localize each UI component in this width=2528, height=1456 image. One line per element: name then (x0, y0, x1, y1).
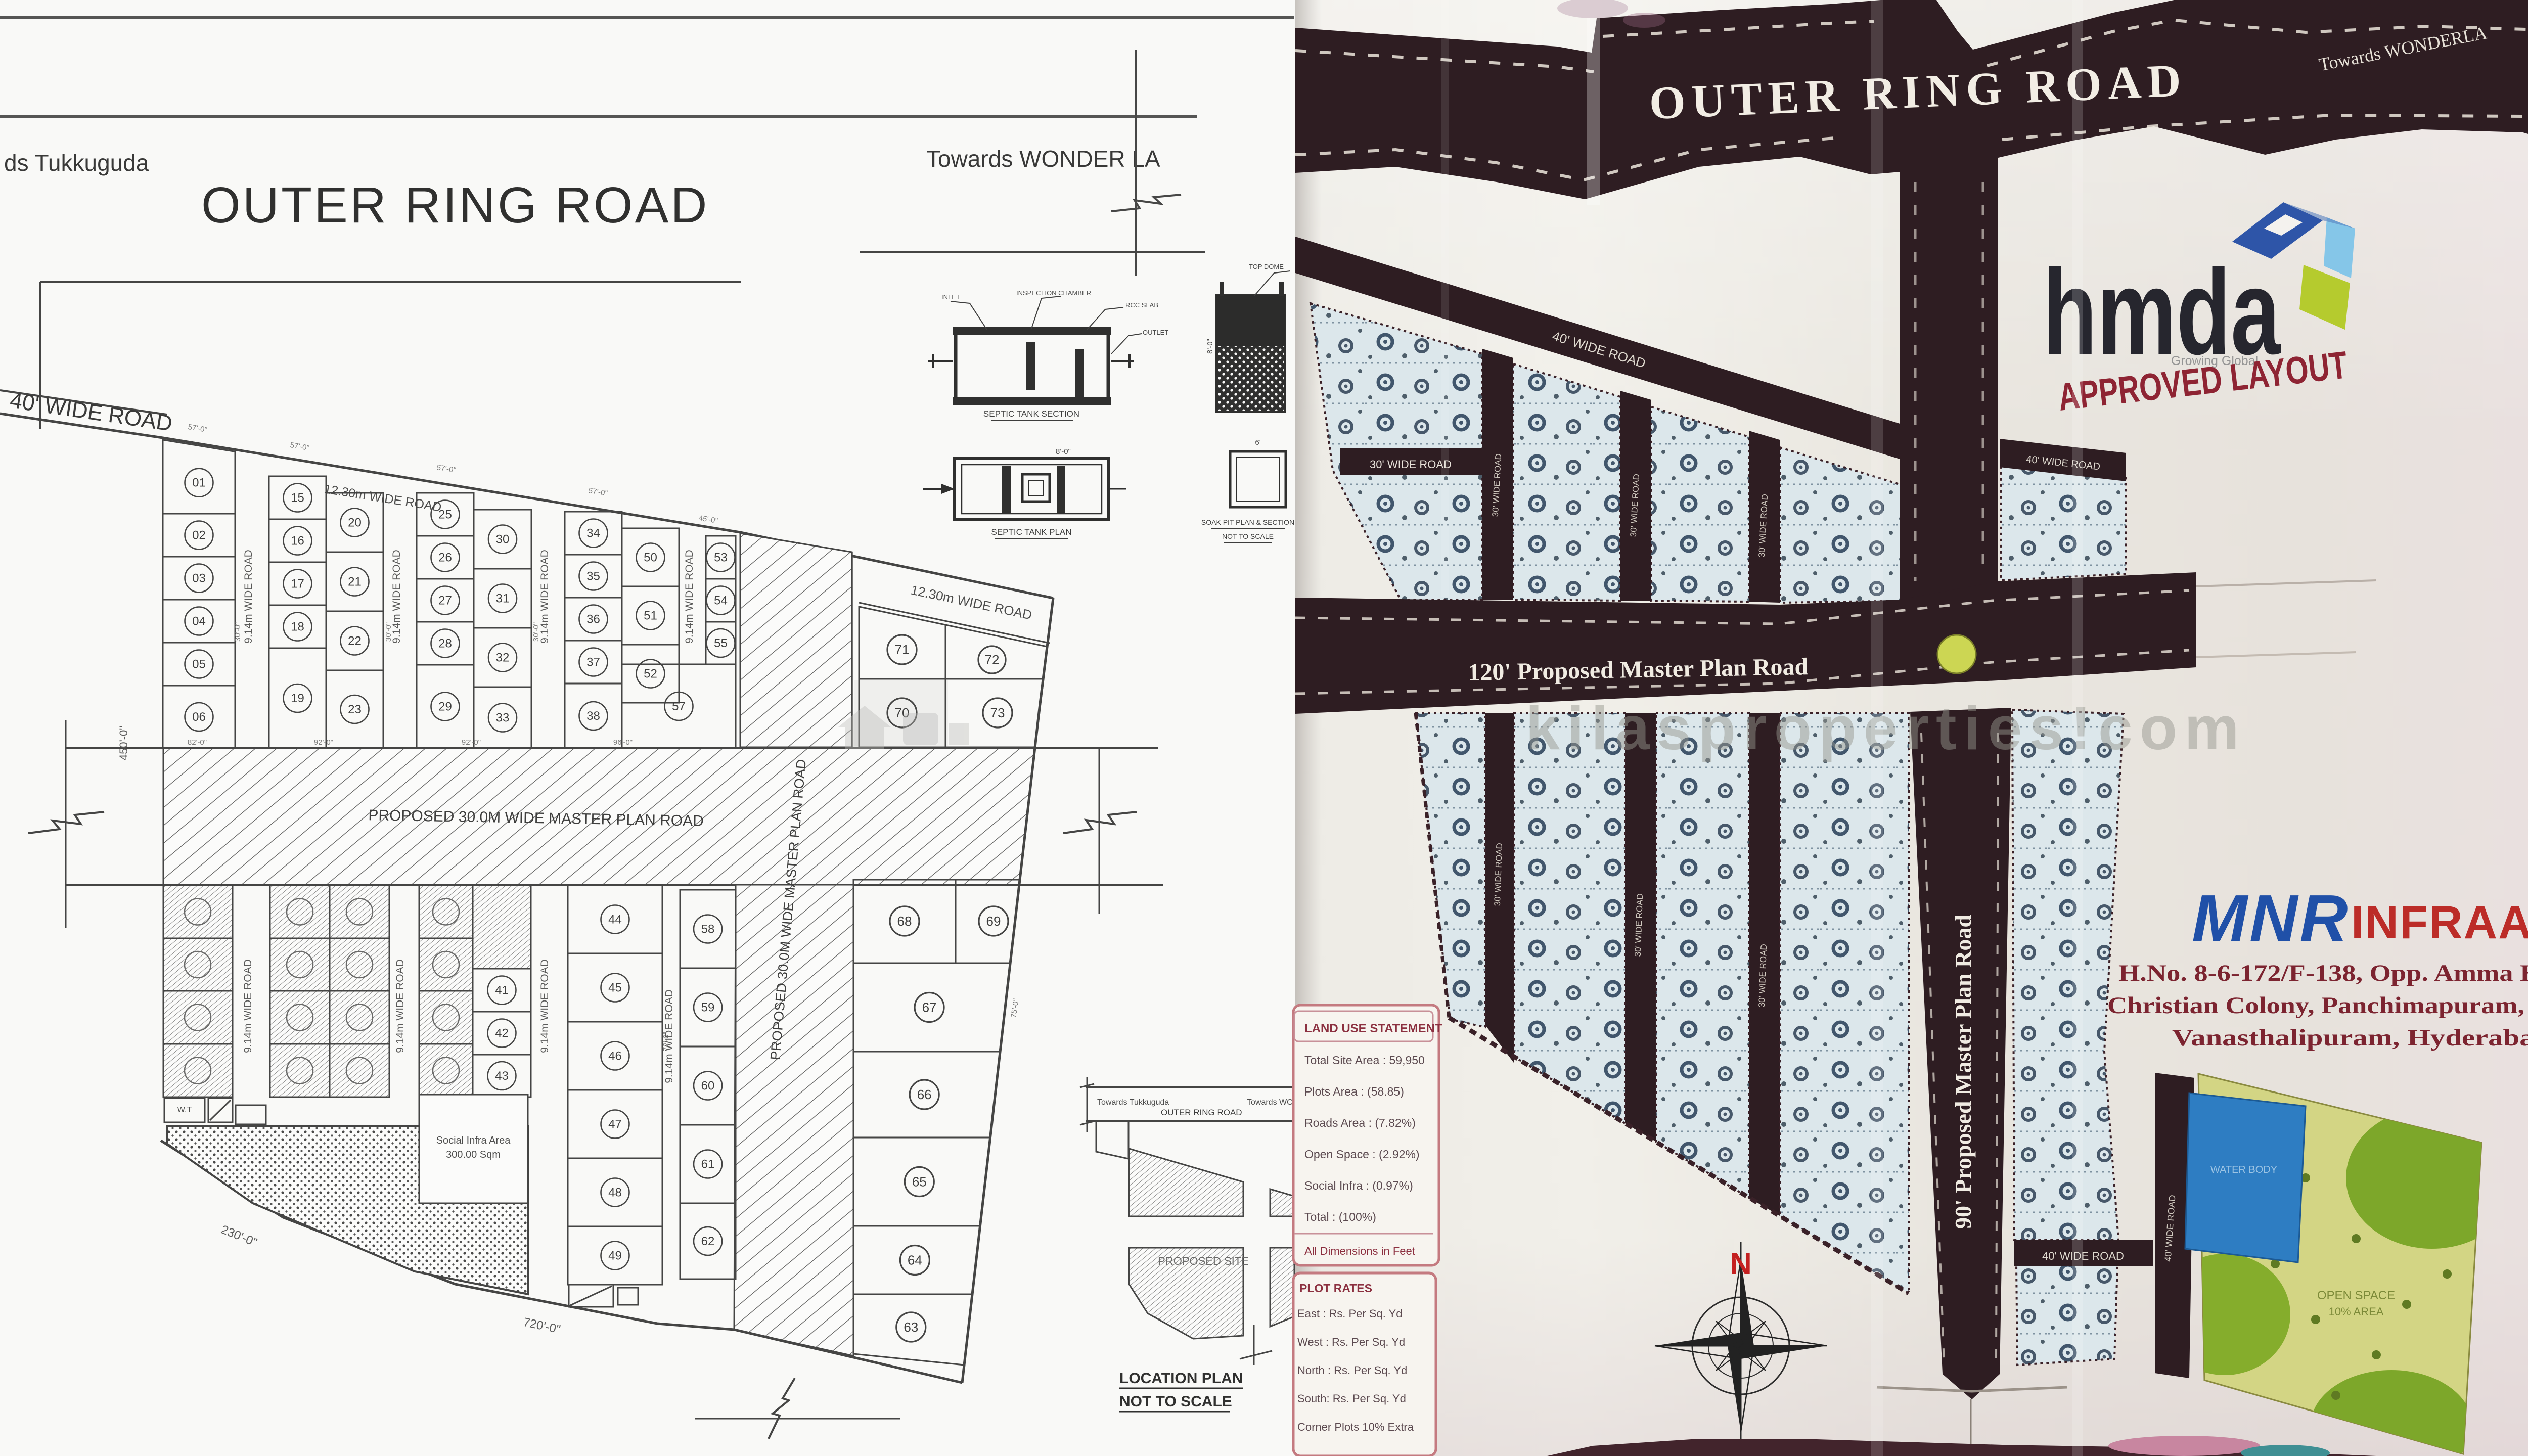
svg-text:Roads Area : (7.82%): Roads Area : (7.82%) (1304, 1116, 1416, 1129)
svg-text:Social Infra : (0.97: Social Infra : (0.97%) (1304, 1179, 1413, 1192)
svg-text:Christian Colony, Panchimapura: Christian Colony, Panchimapuram, Saga (2107, 992, 2528, 1019)
svg-text:N: N (1730, 1247, 1751, 1281)
svg-text:South: Rs. Per Sq. Yd: South: Rs. Per Sq. Yd (1297, 1392, 1406, 1405)
svg-text:kilasproperties!com: kilasproperties!com (1525, 694, 2246, 762)
svg-text:90' Proposed Master Plan Road: 90' Proposed Master Plan Road (1950, 915, 1976, 1229)
svg-text:H.No. 8-6-172/F-138, Opp. Amma: H.No. 8-6-172/F-138, Opp. Amma Hosp (2118, 960, 2528, 986)
svg-text:West : Rs. Per Sq. Yd: West : Rs. Per Sq. Yd (1297, 1336, 1405, 1348)
svg-text:East : Rs. Per Sq. Yd: East : Rs. Per Sq. Yd (1297, 1307, 1402, 1320)
svg-text:Corner Plots 10% Extra: Corner Plots 10% Extra (1297, 1421, 1414, 1433)
svg-text:North : Rs. Per Sq. Yd: North : Rs. Per Sq. Yd (1297, 1364, 1407, 1377)
svg-text:LAND USE STATEMENT: LAND USE STATEMENT (1304, 1022, 1442, 1035)
svg-text:Open Space : (2.92%): Open Space : (2.92%) (1304, 1148, 1420, 1161)
svg-text:10% AREA: 10% AREA (2329, 1305, 2384, 1318)
svg-text:PLOT RATES: PLOT RATES (1299, 1282, 1372, 1295)
svg-text:Total : (: Total : (100%) (1304, 1210, 1376, 1223)
svg-text:WATER BODY: WATER BODY (2210, 1164, 2277, 1175)
svg-text:Total Site Area : 59,950: Total Site Area : 59,950 (1304, 1054, 1425, 1067)
svg-text:Plots Area : (58.8: Plots Area : (58.85) (1304, 1085, 1404, 1098)
svg-text:MNR: MNR (2192, 881, 2350, 955)
svg-text:Vanasthalipuram, Hyderabad.: Vanasthalipuram, Hyderabad. (2172, 1025, 2528, 1051)
svg-text:INFRAA: INFRAA (2351, 897, 2528, 948)
svg-text:All Dimensions in Feet: All Dimensions in Feet (1304, 1245, 1415, 1257)
svg-text:30' WIDE ROAD: 30' WIDE ROAD (1370, 458, 1452, 471)
svg-text:OPEN SPACE: OPEN SPACE (2317, 1289, 2395, 1302)
